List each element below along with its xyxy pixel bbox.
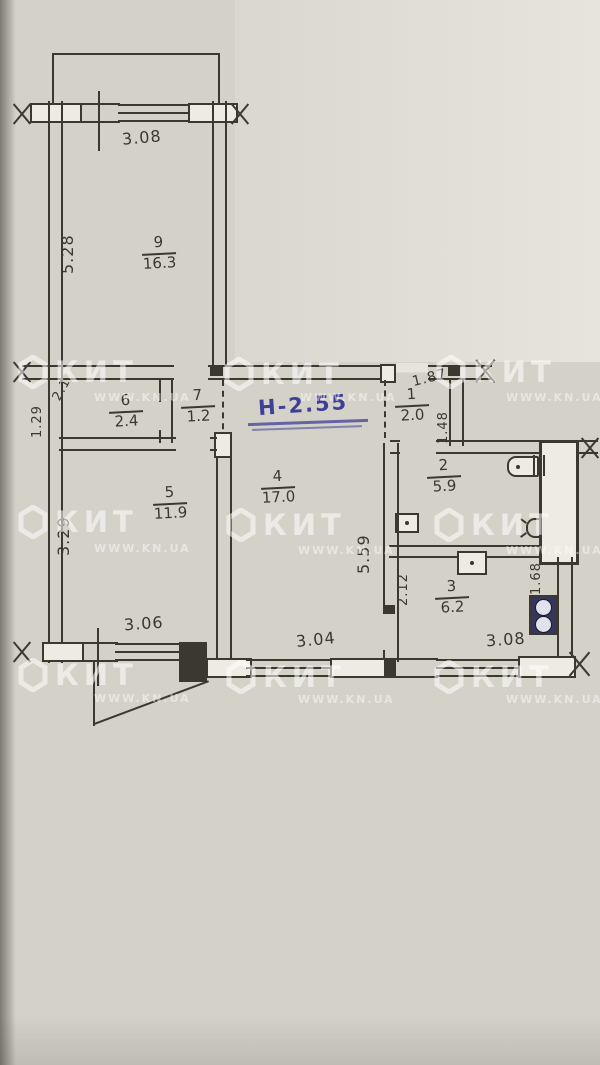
watermark: КИТ <box>224 357 344 391</box>
watermark: КИТ <box>18 355 138 389</box>
wall-kitchen-bottom <box>394 658 438 678</box>
kitchen-sink-icon <box>457 551 487 575</box>
room-label-5: 5 11.9 <box>139 482 201 522</box>
wall-right-outer <box>557 557 573 662</box>
paper-light-area <box>235 0 600 362</box>
dimension-tick <box>98 91 100 151</box>
door-opening-room5 <box>176 435 210 453</box>
room-area: 2.0 <box>400 402 425 424</box>
room-area: 17.0 <box>261 484 295 507</box>
watermark-url: WWW.KN.UA <box>298 693 395 706</box>
watermark-logo-icon <box>18 505 48 539</box>
watermark-logo-icon <box>434 660 464 694</box>
watermark: КИТ <box>434 660 554 694</box>
wall-step-block <box>179 642 207 682</box>
note-underline <box>252 425 362 431</box>
stove-icon <box>529 595 558 635</box>
paper-edge-shadow <box>0 0 16 1065</box>
door-opening-kitchen <box>381 614 397 650</box>
wall-hatch <box>580 436 600 458</box>
dim-kitchen-width: 3.08 <box>485 629 526 651</box>
floor-plan: 3.08 5.28 9 16.3 6 2.4 7 1.2 1.29 2.1 1 … <box>0 0 600 1065</box>
door-opening-closet <box>157 402 171 430</box>
watermark-logo-icon <box>224 357 254 391</box>
watermark-url: WWW.KN.UA <box>506 544 600 557</box>
room-area: 11.9 <box>153 500 187 523</box>
paper-bottom-shadow <box>0 1015 600 1065</box>
door-post <box>380 364 396 383</box>
watermark-url: WWW.KN.UA <box>94 391 191 404</box>
dim-room9-depth: 5.28 <box>58 208 77 274</box>
watermark-logo-icon <box>436 355 466 389</box>
watermark-logo-icon <box>18 658 48 692</box>
room-area: 6.2 <box>440 594 465 616</box>
dim-top-width: 3.08 <box>121 126 162 148</box>
watermark: КИТ <box>436 355 556 389</box>
zone-line-hall <box>384 380 386 438</box>
balcony-top-outline <box>52 53 220 105</box>
window-top <box>118 104 190 122</box>
watermark-brand: КИТ <box>261 357 344 391</box>
room-label-2: 2 5.9 <box>417 456 471 496</box>
watermark-url: WWW.KN.UA <box>298 544 395 557</box>
wall-hatch <box>230 102 250 124</box>
room-area: 1.2 <box>186 403 211 425</box>
watermark-url: WWW.KN.UA <box>506 693 600 706</box>
watermark-url: WWW.KN.UA <box>94 542 191 555</box>
dim-room4-width: 3.04 <box>295 628 336 651</box>
watermark-brand: КИТ <box>55 505 138 539</box>
toilet-tank <box>533 455 545 476</box>
watermark-brand: КИТ <box>471 508 554 542</box>
watermark: КИТ <box>18 658 138 692</box>
room-label-9: 9 16.3 <box>125 232 193 272</box>
dim-hall-depth: 1.48 <box>436 398 451 444</box>
watermark-url: WWW.KN.UA <box>94 692 191 705</box>
wall-room9-right <box>212 101 227 367</box>
watermark-brand: КИТ <box>471 660 554 694</box>
wall-post <box>210 367 223 376</box>
watermark-url: WWW.KN.UA <box>506 391 600 404</box>
wall-hatch <box>568 650 592 676</box>
watermark: КИТ <box>18 505 138 539</box>
room-area: 2.4 <box>114 408 139 430</box>
watermark: КИТ <box>434 508 554 542</box>
watermark-brand: КИТ <box>55 355 138 389</box>
room-label-3: 3 6.2 <box>423 577 481 617</box>
watermark-brand: КИТ <box>263 508 346 542</box>
watermark-brand: КИТ <box>55 658 138 692</box>
door-opening-bathroom <box>400 438 436 456</box>
watermark: КИТ <box>226 508 346 542</box>
door-post <box>383 605 395 614</box>
watermark: КИТ <box>226 660 346 694</box>
dim-room5-width: 3.06 <box>123 613 164 635</box>
watermark-logo-icon <box>18 355 48 389</box>
wall-room5-room4 <box>216 444 232 662</box>
door-opening-room9 <box>174 363 208 382</box>
room-area: 16.3 <box>142 250 176 273</box>
watermark-brand: КИТ <box>473 355 556 389</box>
dim-kitchen-depth: 2.12 <box>396 560 411 606</box>
watermark-logo-icon <box>434 508 464 542</box>
wall-hatch <box>12 102 32 124</box>
watermark-url: WWW.KN.UA <box>300 391 397 404</box>
dim-corridor-niche: 1.29 <box>30 388 45 438</box>
dim-vent-offset: 1.68 <box>529 553 544 595</box>
room-area: 5.9 <box>432 473 457 495</box>
watermark-logo-icon <box>226 660 256 694</box>
room-label-4: 4 17.0 <box>247 466 309 506</box>
watermark-logo-icon <box>226 508 256 542</box>
watermark-brand: КИТ <box>263 660 346 694</box>
